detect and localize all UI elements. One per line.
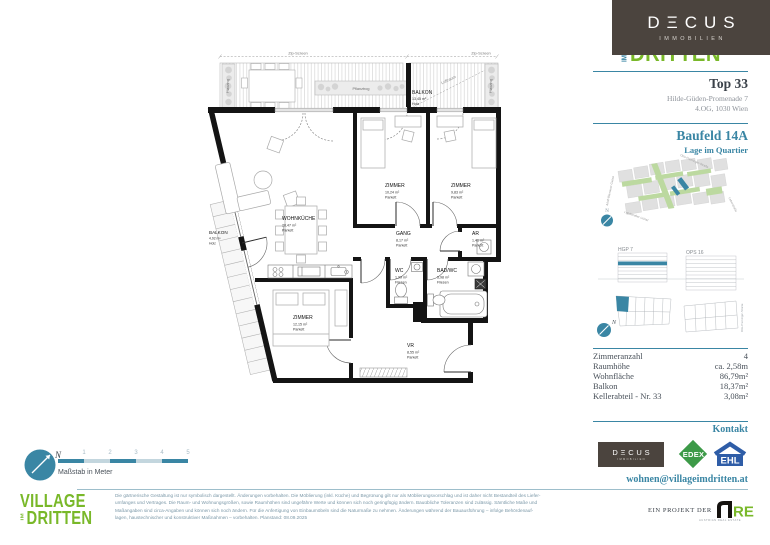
are-logo: RE <box>716 500 760 520</box>
svg-text:Fliesen: Fliesen <box>395 281 407 285</box>
room-label-zimmer-2: ZIMMER 9,83 m² Parkett <box>451 183 471 200</box>
svg-text:Fliesen: Fliesen <box>437 281 449 285</box>
svg-text:BALKON: BALKON <box>209 230 228 235</box>
facts-row: Kellerabteil - Nr. 33 3,08m² <box>593 392 748 402</box>
floor-plan: Zip-Screen Zip-Screen <box>185 50 515 400</box>
svg-text:4,92 m²: 4,92 m² <box>209 237 221 241</box>
brochure-page: Zip-Screen Zip-Screen <box>0 0 770 545</box>
room-label-ar: AR 1,41 m² Parkett <box>472 231 485 248</box>
svg-text:GANG: GANG <box>396 231 411 237</box>
decus-logo-text: DΞCUS <box>647 13 741 33</box>
unit-title: Top 33 <box>593 76 748 92</box>
quarter-map: Otto-Preminger-Straße Adolf-Blamauer-Gas… <box>598 153 748 237</box>
svg-text:AR: AR <box>472 231 479 237</box>
site-diagrams: HGP 7 OPS 16 Otto- <box>596 242 748 342</box>
svg-text:ZIMMER: ZIMMER <box>451 183 471 189</box>
svg-text:WOHNKÜCHE: WOHNKÜCHE <box>282 215 316 222</box>
divider <box>593 71 748 72</box>
svg-text:28,47 m²: 28,47 m² <box>282 223 297 227</box>
svg-text:Parkett: Parkett <box>472 244 483 248</box>
svg-text:N: N <box>611 320 617 326</box>
scale-bar: 1 2 3 4 5 Maßstab in Meter <box>58 450 190 484</box>
ehl-text: EHL <box>721 456 740 467</box>
kontakt-logo-decus: DΞCUS IMMOBILIEN <box>598 442 664 467</box>
scale-tick: 5 <box>186 450 189 456</box>
decus-mini-text: DΞCUS <box>612 448 652 457</box>
svg-text:WC: WC <box>395 268 404 274</box>
decus-logo-subtext: IMMOBILIEN <box>659 36 725 42</box>
unit-address-2: 4.OG, 1030 Wien <box>593 104 748 113</box>
project-credit: EIN PROJEKT DER RE <box>648 500 760 520</box>
scale-bar-segments <box>58 459 188 463</box>
svg-text:9,83 m²: 9,83 m² <box>451 190 464 194</box>
svg-text:10,24 m²: 10,24 m² <box>385 190 400 194</box>
zipscreen-label-left: Zip-Screen <box>288 51 308 56</box>
svg-text:1,41 m²: 1,41 m² <box>472 238 485 242</box>
svg-text:Leberstraße: Leberstraße <box>728 196 739 213</box>
kontakt-logo-edex: EDEX <box>679 440 708 469</box>
hgp-label: HGP 7 <box>618 247 633 253</box>
village-dritten: DRITTEN <box>27 511 93 526</box>
dimension-zipscreen: Zip-Screen Zip-Screen <box>219 51 499 59</box>
room-label-zimmer-1: ZIMMER 10,24 m² Parkett <box>385 183 405 200</box>
svg-text:Parkett: Parkett <box>396 244 407 248</box>
ops-label: OPS 16 <box>686 250 704 256</box>
fact-label: Kellerabteil - Nr. 33 <box>593 392 661 402</box>
disclaimer: Die gärtnerische Gestaltung ist nur symb… <box>115 492 585 521</box>
site-street-label: Otto-Preminger-Straße <box>740 303 744 332</box>
top-balcony: Pflanztrog Pflanztrog Pflanztrog Luftrau… <box>220 63 498 110</box>
svg-text:8,55 m²: 8,55 m² <box>407 350 420 354</box>
svg-text:ZIMMER: ZIMMER <box>293 315 313 321</box>
room-label-wc: WC 1,99 m² Fliesen <box>395 268 408 285</box>
site-compass: N <box>597 320 617 337</box>
baufeld-title: Baufeld 14A <box>593 128 748 144</box>
kontakt-email: wohnen@villageimdritten.at <box>593 474 748 485</box>
svg-text:1,99 m²: 1,99 m² <box>395 275 408 279</box>
pflanztrog-label-right: Pflanztrog <box>489 79 493 94</box>
are-subtext: AUSTRIAN REAL ESTATE <box>690 519 750 522</box>
disclaimer-line: lagen, haustechnischer und konstruktiver… <box>115 514 585 521</box>
svg-text:Parkett: Parkett <box>282 229 293 233</box>
kontakt-title: Kontakt <box>593 424 748 435</box>
ops-elevation <box>686 256 736 290</box>
pflanztrog-label-left: Pflanztrog <box>226 79 230 94</box>
decus-logo: DΞCUS IMMOBILIEN <box>612 0 770 55</box>
svg-text:Parkett: Parkett <box>293 328 304 332</box>
disclaimer-line: umfanges und Vertrages. Die Raum- und Wo… <box>115 499 585 506</box>
svg-text:BALKON: BALKON <box>412 90 433 96</box>
village-logo: VILLAGE IM DRITTEN <box>20 494 108 526</box>
scale-tick: 2 <box>108 450 111 456</box>
svg-text:Adolf-Blamauer-Gasse: Adolf-Blamauer-Gasse <box>605 175 615 206</box>
svg-text:VR: VR <box>407 343 414 349</box>
divider <box>593 348 748 349</box>
svg-text:12,15 m²: 12,15 m² <box>293 322 308 326</box>
pflanztrog-label-mid: Pflanztrog <box>352 87 369 91</box>
scale-tick: 4 <box>160 450 163 456</box>
outdoor-table <box>242 64 303 109</box>
scale-label: Maßstab in Meter <box>58 469 112 476</box>
are-text: RE <box>733 504 754 521</box>
site-highlighted-unit <box>616 296 629 312</box>
edex-text: EDEX <box>679 450 708 459</box>
svg-text:Holz: Holz <box>412 102 419 106</box>
unit-address-1: Hilde-Güden-Promenade 7 <box>593 94 748 103</box>
unit-header: Top 33 Hilde-Güden-Promenade 7 4.OG, 103… <box>593 76 748 113</box>
svg-text:BAD/WC: BAD/WC <box>437 268 457 274</box>
village-line1: VILLAGE <box>20 494 92 509</box>
fact-value: 3,08m² <box>724 392 748 402</box>
svg-text:5,98 m²: 5,98 m² <box>437 275 450 279</box>
svg-text:ZIMMER: ZIMMER <box>385 183 405 189</box>
map-compass: N <box>601 209 613 227</box>
baufeld-header: Baufeld 14A Lage im Quartier <box>593 128 748 155</box>
svg-text:Holz: Holz <box>209 241 216 245</box>
footer-divider <box>77 489 748 490</box>
disclaimer-line: Die gärtnerische Gestaltung ist nur symb… <box>115 492 585 499</box>
svg-text:N: N <box>605 209 609 214</box>
hgp-highlighted-floor <box>618 262 667 266</box>
room-label-badwc: BAD/WC 5,98 m² Fliesen <box>437 268 457 285</box>
disclaimer-line: Maßangaben sind circa-Angaben und können… <box>115 507 585 514</box>
hgp-elevation <box>618 253 667 282</box>
village-im: IM <box>17 513 29 521</box>
svg-text:Parkett: Parkett <box>385 196 396 200</box>
room-label-gang: GANG 8,17 m² Parkett <box>396 231 411 248</box>
scale-tick: 3 <box>134 450 137 456</box>
svg-text:Parkett: Parkett <box>407 356 418 360</box>
svg-text:8,17 m²: 8,17 m² <box>396 238 409 242</box>
zipscreen-label-right: Zip-Screen <box>471 51 491 56</box>
svg-text:Parkett: Parkett <box>451 196 462 200</box>
room-label-vr: VR 8,55 m² Parkett <box>407 343 420 360</box>
divider <box>593 421 748 422</box>
divider <box>593 123 748 124</box>
site-plate-right <box>684 301 738 332</box>
project-label: EIN PROJEKT DER <box>648 507 712 514</box>
svg-text:13,45 m²: 13,45 m² <box>412 97 427 101</box>
facts-table: Zimmeranzahl 4 Raumhöhe ca. 2,58m Wohnfl… <box>593 352 748 402</box>
decus-mini-subtext: IMMOBILIEN <box>618 458 646 461</box>
kontakt-logo-ehl: EHL <box>712 441 748 468</box>
scale-tick: 1 <box>82 450 85 456</box>
village-line2: IM DRITTEN <box>20 509 92 526</box>
